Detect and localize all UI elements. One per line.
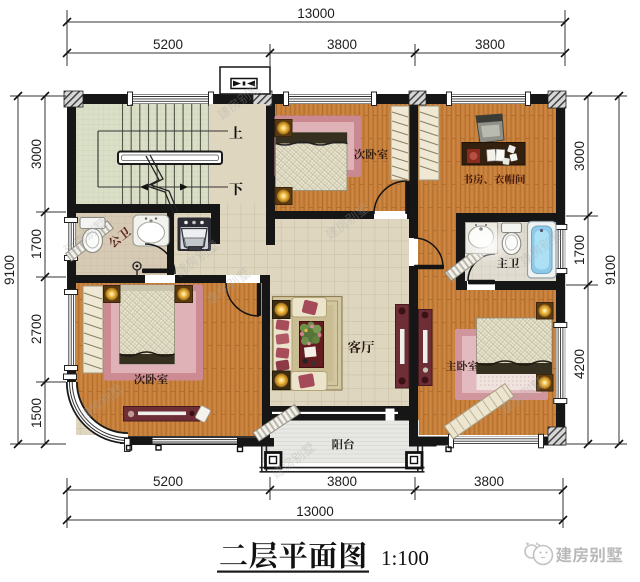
svg-text:1500: 1500 xyxy=(29,398,44,428)
svg-text:3000: 3000 xyxy=(572,141,587,171)
svg-text:3800: 3800 xyxy=(327,474,357,489)
svg-text:5200: 5200 xyxy=(153,37,183,52)
svg-text:5200: 5200 xyxy=(153,474,183,489)
svg-text:13000: 13000 xyxy=(296,504,334,519)
svg-text:9100: 9100 xyxy=(2,255,17,285)
svg-text:1700: 1700 xyxy=(29,229,44,259)
svg-text:2700: 2700 xyxy=(29,314,44,344)
svg-text:3800: 3800 xyxy=(475,37,505,52)
svg-text:4200: 4200 xyxy=(572,349,587,379)
svg-text:1:100: 1:100 xyxy=(381,546,429,570)
svg-text:3000: 3000 xyxy=(29,139,44,169)
svg-text:3800: 3800 xyxy=(474,474,504,489)
svg-text:3800: 3800 xyxy=(327,37,357,52)
svg-text:13000: 13000 xyxy=(297,6,335,21)
svg-text:9100: 9100 xyxy=(603,255,618,285)
svg-text:1700: 1700 xyxy=(572,235,587,265)
